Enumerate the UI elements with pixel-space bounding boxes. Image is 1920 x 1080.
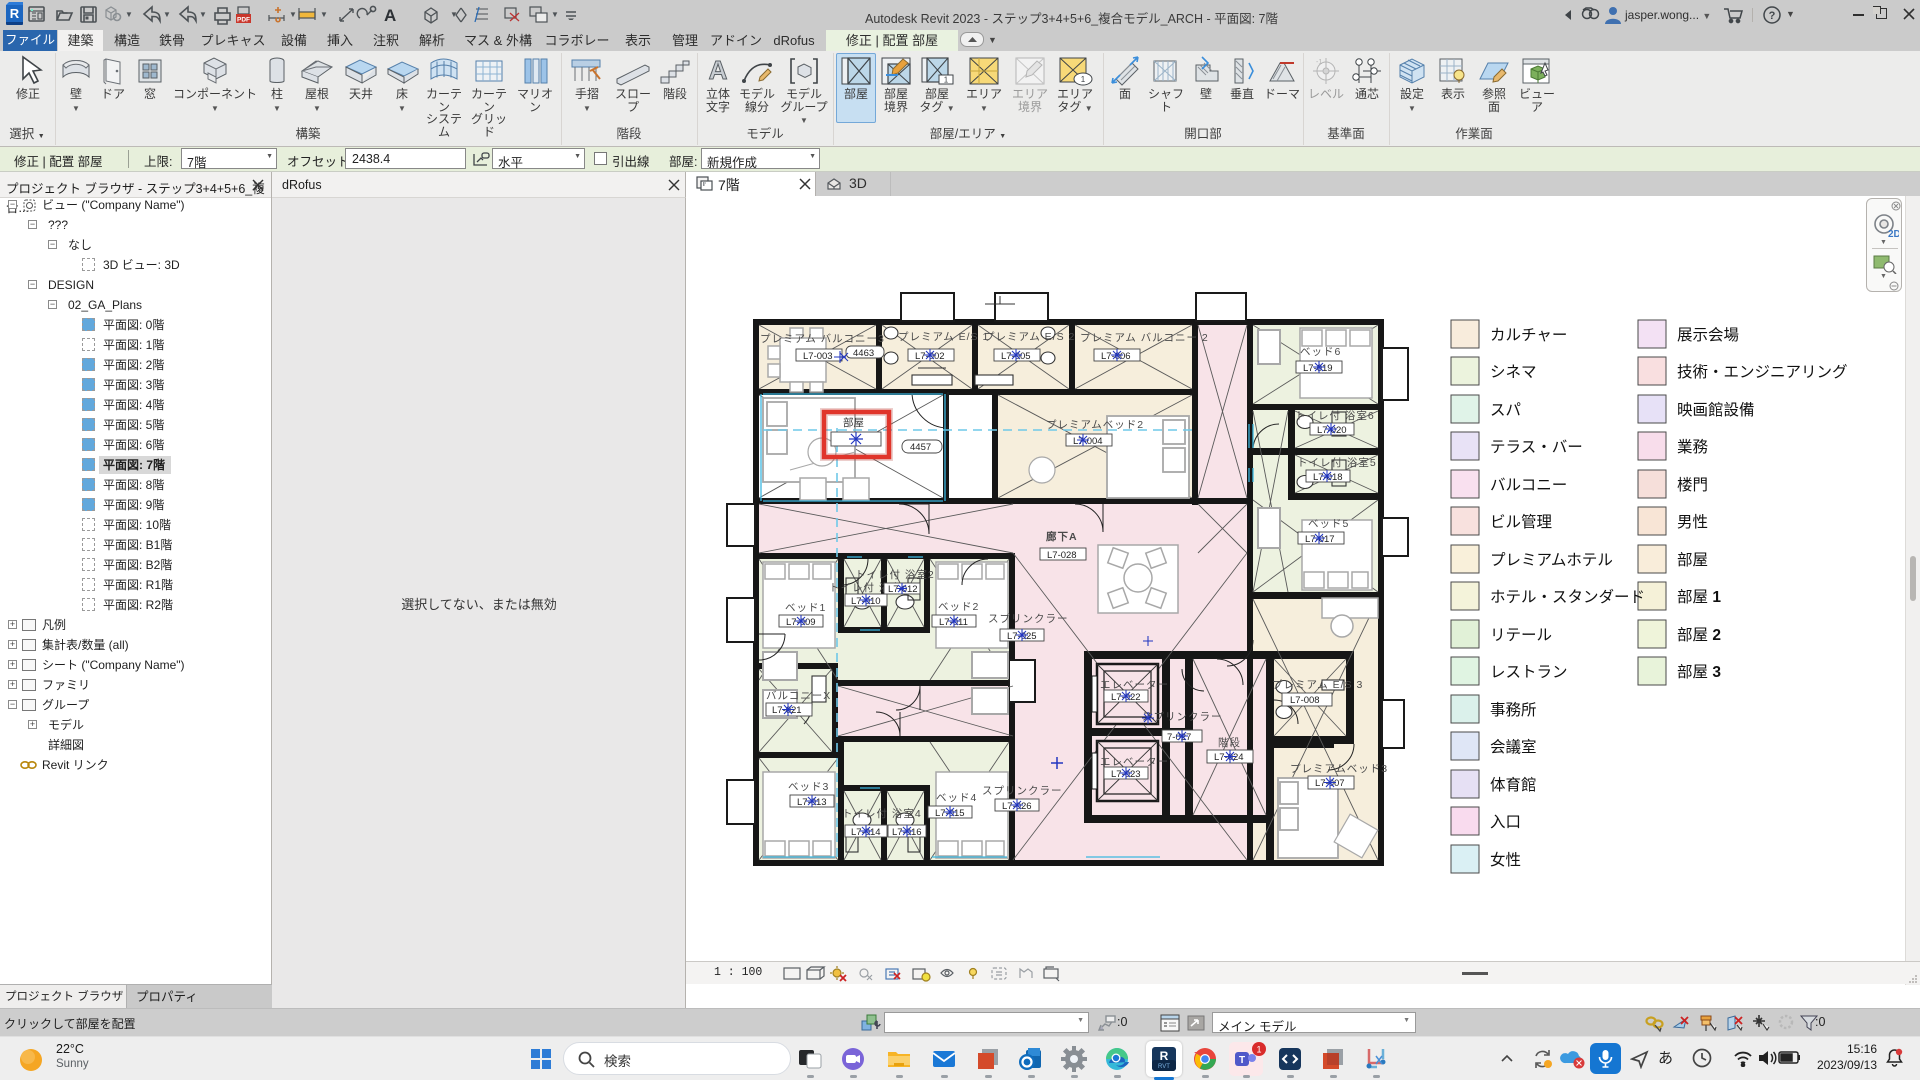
svg-text:シネマ: シネマ bbox=[1490, 363, 1537, 381]
svg-text:-1: -1 bbox=[1316, 59, 1322, 66]
svg-text:プレミアムベッド2: プレミアムベッド2 bbox=[1046, 419, 1144, 431]
svg-text:スプリンクラー: スプリンクラー bbox=[982, 785, 1063, 797]
svg-text:ビル管理: ビル管理 bbox=[1490, 513, 1552, 531]
svg-text:部屋 2: 部屋 2 bbox=[1677, 626, 1721, 644]
svg-text:R: R bbox=[1160, 1049, 1169, 1063]
svg-text:体育館: 体育館 bbox=[1490, 776, 1537, 794]
svg-text:技術・エンジニアリング: 技術・エンジニアリング bbox=[1677, 363, 1848, 381]
svg-text:L7-004: L7-004 bbox=[1073, 436, 1103, 447]
svg-text:2D: 2D bbox=[1888, 229, 1899, 239]
svg-text:?: ? bbox=[1769, 10, 1776, 22]
svg-text:T: T bbox=[1239, 1055, 1245, 1066]
svg-text:ベッド1: ベッド1 bbox=[785, 602, 826, 614]
svg-text:部屋: 部屋 bbox=[1677, 551, 1708, 569]
svg-text:業務: 業務 bbox=[1677, 438, 1709, 456]
svg-text:RVT: RVT bbox=[1158, 1064, 1170, 1070]
svg-text:L7-003: L7-003 bbox=[803, 351, 833, 362]
svg-text:プレミアムベッド3: プレミアムベッド3 bbox=[1290, 763, 1388, 775]
svg-text:映画館設備: 映画館設備 bbox=[1677, 401, 1755, 419]
svg-text:楼門: 楼門 bbox=[1677, 476, 1708, 494]
svg-text:テラス・バー: テラス・バー bbox=[1490, 439, 1583, 456]
svg-text:ベッド5: ベッド5 bbox=[1308, 518, 1349, 530]
svg-text:部屋 1: 部屋 1 bbox=[1677, 588, 1721, 606]
svg-text:階段: 階段 bbox=[1218, 736, 1241, 749]
svg-text:展示会場: 展示会場 bbox=[1677, 326, 1739, 344]
svg-text:ベッド3: ベッド3 bbox=[788, 781, 829, 793]
svg-text:4463: 4463 bbox=[853, 348, 874, 359]
svg-text:1: 1 bbox=[944, 76, 949, 85]
svg-text:ベッド2: ベッド2 bbox=[938, 601, 979, 613]
svg-text:入口: 入口 bbox=[1490, 814, 1521, 831]
svg-text:プレミアム E/S 3: プレミアム E/S 3 bbox=[1272, 679, 1363, 691]
svg-text:レストラン: レストラン bbox=[1490, 664, 1568, 681]
svg-text:ベッド4: ベッド4 bbox=[936, 792, 977, 804]
svg-text:ホテル・スタンダード: ホテル・スタンダード bbox=[1490, 588, 1645, 606]
svg-text:プレミアム バルコニー3: プレミアム バルコニー3 bbox=[760, 333, 885, 345]
svg-text:ベッド6: ベッド6 bbox=[1300, 346, 1341, 358]
svg-text:事務所: 事務所 bbox=[1490, 701, 1537, 719]
svg-text:部屋: 部屋 bbox=[843, 416, 864, 429]
svg-text:女性: 女性 bbox=[1490, 850, 1521, 869]
svg-text:L7-011: L7-011 bbox=[939, 617, 968, 628]
svg-text:スプリンクラー: スプリンクラー bbox=[1142, 711, 1223, 723]
svg-text:プレミアム E/S 2: プレミアム E/S 2 bbox=[984, 331, 1075, 343]
svg-text:1: 1 bbox=[1081, 75, 1086, 84]
svg-text:バルコニーX: バルコニーX bbox=[766, 690, 831, 702]
svg-text:トイレ付 浴室4: トイレ付 浴室4 bbox=[842, 807, 922, 820]
svg-text:プレミアム バルコニー 2: プレミアム バルコニー 2 bbox=[1080, 332, 1209, 344]
svg-text:スパ: スパ bbox=[1490, 402, 1521, 419]
svg-text:A: A bbox=[709, 55, 728, 85]
svg-text:PDF: PDF bbox=[237, 17, 250, 24]
svg-text:1: 1 bbox=[1256, 1045, 1261, 1055]
svg-text:エレベーター: エレベーター bbox=[1100, 756, 1169, 768]
svg-text:L7-008: L7-008 bbox=[1290, 695, 1320, 706]
svg-text:プレミアム E/S 1: プレミアム E/S 1 bbox=[898, 331, 989, 343]
svg-text:トイレ付 浴室6: トイレ付 浴室6 bbox=[1295, 409, 1375, 422]
svg-text:カルチャー: カルチャー bbox=[1490, 327, 1567, 344]
svg-text:トイレ付 浴室2: トイレ付 浴室2 bbox=[855, 568, 935, 581]
svg-text:エレベーター: エレベーター bbox=[1100, 679, 1169, 691]
svg-text:バルコニー: バルコニー bbox=[1490, 477, 1567, 494]
svg-text:プレミアムホテル: プレミアムホテル bbox=[1490, 551, 1613, 569]
svg-text:男性: 男性 bbox=[1677, 513, 1708, 531]
svg-text:L7-028: L7-028 bbox=[1047, 550, 1077, 561]
svg-text:リテール: リテール bbox=[1490, 627, 1552, 644]
svg-text:廊下A: 廊下A bbox=[1046, 530, 1078, 543]
svg-text:スプリンクラー: スプリンクラー bbox=[988, 613, 1069, 625]
svg-text:A: A bbox=[384, 6, 396, 25]
svg-text:トイレ付 浴室5: トイレ付 浴室5 bbox=[1297, 456, 1377, 469]
svg-text:部屋 3: 部屋 3 bbox=[1677, 663, 1721, 681]
svg-text:4457: 4457 bbox=[910, 442, 931, 453]
svg-text:会議室: 会議室 bbox=[1490, 738, 1537, 756]
